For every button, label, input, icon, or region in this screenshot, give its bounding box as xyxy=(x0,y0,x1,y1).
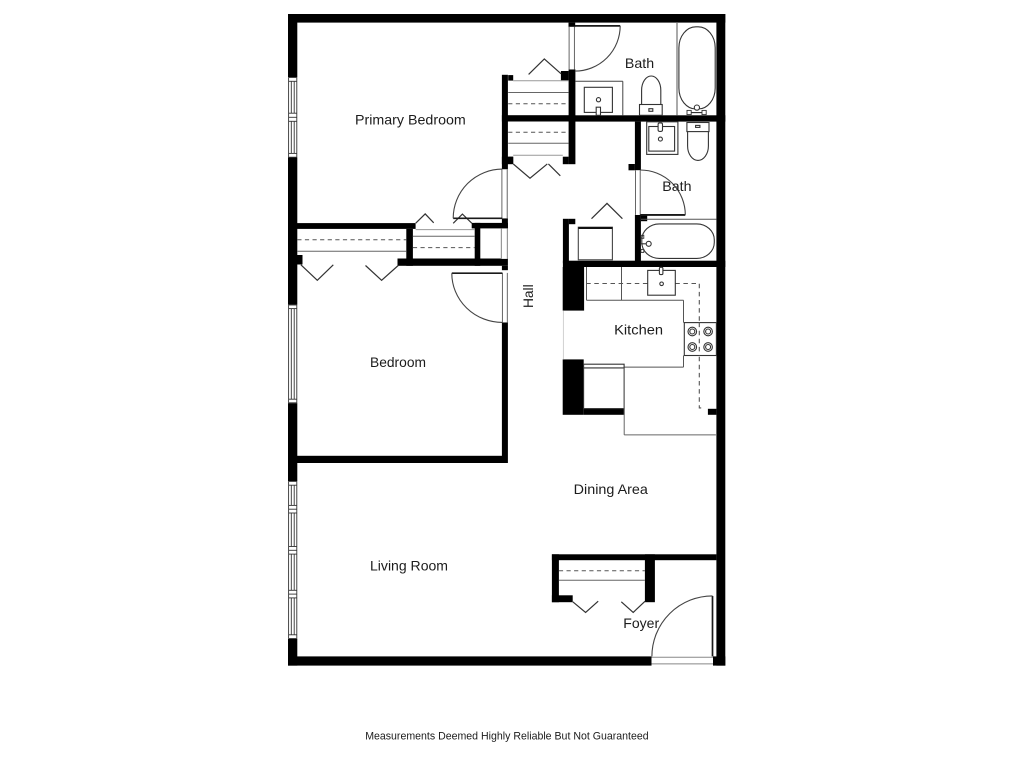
svg-text:Primary Bedroom: Primary Bedroom xyxy=(355,113,466,128)
svg-text:Bath: Bath xyxy=(662,179,691,194)
svg-text:Living Room: Living Room xyxy=(370,558,448,573)
svg-text:Foyer: Foyer xyxy=(623,616,659,631)
svg-text:Dining Area: Dining Area xyxy=(574,482,649,497)
svg-text:Bedroom: Bedroom xyxy=(370,355,426,370)
svg-text:Hall: Hall xyxy=(521,284,536,308)
svg-text:Measurements Deemed Highly Rel: Measurements Deemed Highly Reliable But … xyxy=(365,730,648,742)
svg-text:Bath: Bath xyxy=(625,56,654,71)
svg-text:Kitchen: Kitchen xyxy=(614,323,663,338)
